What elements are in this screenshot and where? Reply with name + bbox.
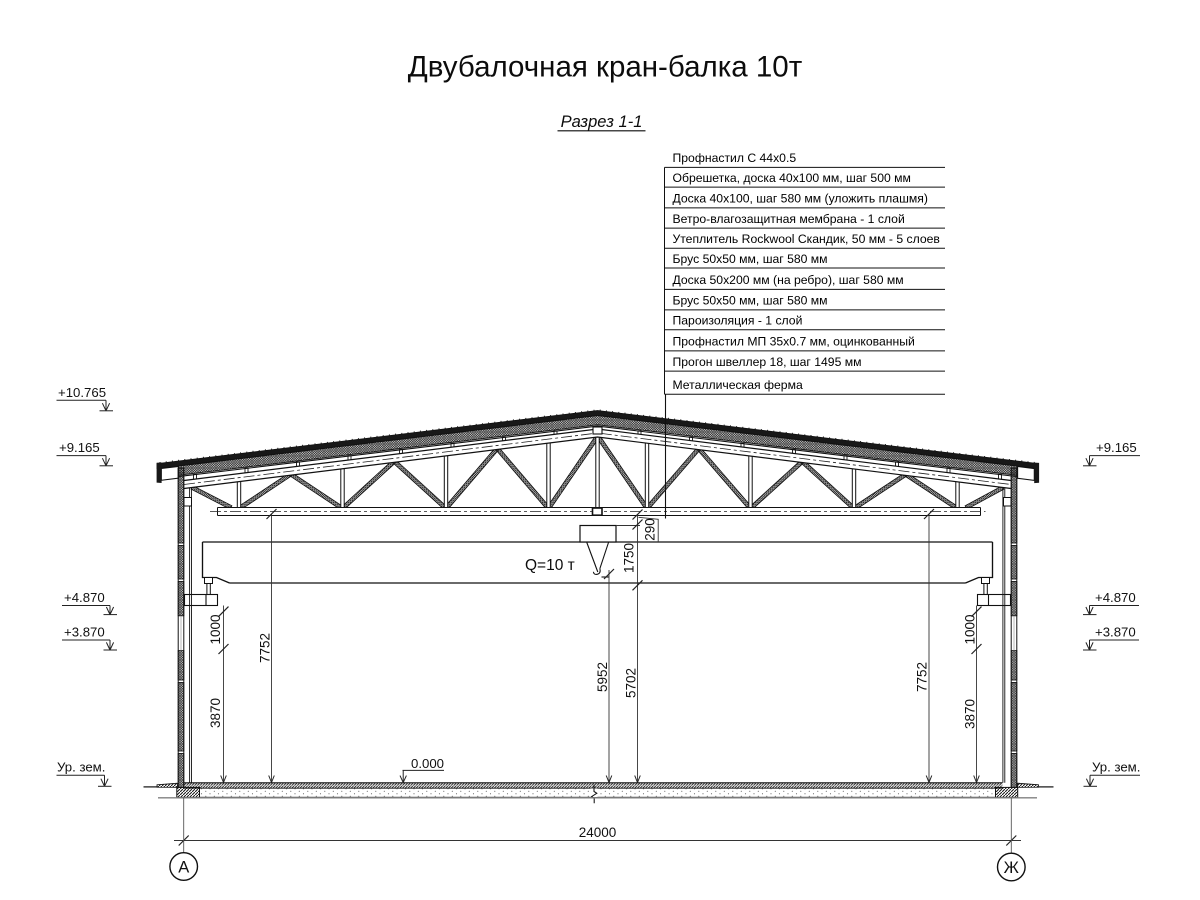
svg-text:+3.870: +3.870 [1095, 625, 1136, 640]
svg-text:Профнастил МП 35х0.7 мм, оцинк: Профнастил МП 35х0.7 мм, оцинкованный [673, 335, 915, 349]
svg-text:Разрез 1-1: Разрез 1-1 [561, 113, 643, 131]
svg-text:0.000: 0.000 [411, 756, 444, 771]
svg-text:+10.765: +10.765 [58, 385, 106, 400]
svg-text:1750: 1750 [622, 543, 637, 573]
svg-text:Ж: Ж [1004, 859, 1020, 877]
svg-text:Утеплитель Rockwool Скандик, 5: Утеплитель Rockwool Скандик, 50 мм - 5 с… [673, 232, 940, 246]
svg-text:Обрешетка, доска 40х100 мм, ша: Обрешетка, доска 40х100 мм, шаг 500 мм [673, 171, 911, 185]
svg-text:А: А [178, 858, 189, 876]
svg-text:3870: 3870 [962, 699, 977, 729]
svg-text:7752: 7752 [258, 633, 273, 663]
svg-text:Брус 50х50 мм, шаг 580 мм: Брус 50х50 мм, шаг 580 мм [673, 252, 828, 266]
svg-text:+4.870: +4.870 [1095, 590, 1136, 605]
svg-text:Пароизоляция - 1 слой: Пароизоляция - 1 слой [673, 314, 803, 328]
svg-text:1000: 1000 [962, 614, 977, 644]
svg-text:7752: 7752 [915, 662, 930, 692]
svg-text:1000: 1000 [208, 614, 223, 644]
svg-text:24000: 24000 [579, 825, 617, 840]
svg-text:5952: 5952 [595, 662, 610, 692]
svg-text:Брус 50х50 мм, шаг 580 мм: Брус 50х50 мм, шаг 580 мм [673, 294, 828, 308]
svg-text:Доска 40х100, шаг 580 мм (улож: Доска 40х100, шаг 580 мм (уложить плашмя… [673, 192, 928, 206]
svg-text:Q=10 т: Q=10 т [525, 557, 575, 574]
svg-text:290: 290 [643, 518, 658, 541]
svg-text:Ур. зем.: Ур. зем. [1092, 760, 1140, 775]
svg-text:Профнастил С 44х0.5: Профнастил С 44х0.5 [673, 151, 797, 165]
svg-text:+4.870: +4.870 [64, 590, 105, 605]
svg-text:Двубалочная кран-балка 10т: Двубалочная кран-балка 10т [408, 51, 802, 84]
svg-text:+3.870: +3.870 [64, 625, 105, 640]
svg-text:5702: 5702 [624, 668, 639, 698]
svg-text:Прогон швеллер 18, шаг 1495 мм: Прогон швеллер 18, шаг 1495 мм [673, 355, 862, 369]
svg-text:Металлическая ферма: Металлическая ферма [673, 378, 803, 392]
svg-text:3870: 3870 [208, 698, 223, 728]
svg-text:+9.165: +9.165 [1096, 440, 1137, 455]
svg-text:Ур. зем.: Ур. зем. [57, 760, 105, 775]
svg-text:Доска 50х200 мм (на ребро), ша: Доска 50х200 мм (на ребро), шаг 580 мм [673, 273, 904, 287]
svg-text:Ветро-влагозащитная мембрана -: Ветро-влагозащитная мембрана - 1 слой [673, 212, 905, 226]
svg-text:+9.165: +9.165 [59, 440, 100, 455]
